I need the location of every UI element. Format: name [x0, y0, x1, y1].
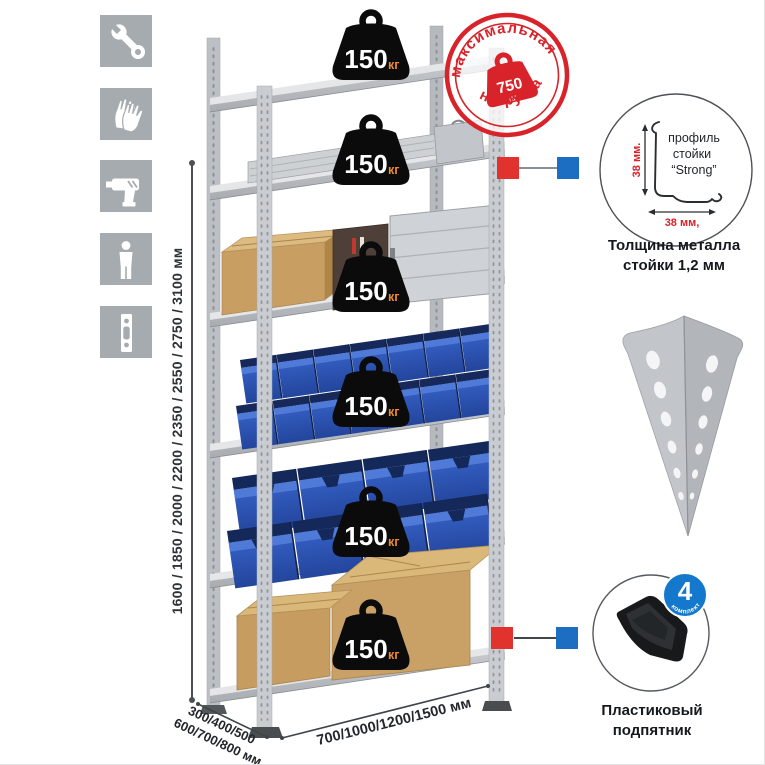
- base-dimensions: 300/400/500 600/700/800 мм 700/1000/1200…: [140, 682, 570, 765]
- foot-detail-circle: 4 в комплекте: [588, 568, 718, 698]
- height-dimension-label: 1600 / 1850 / 2000 / 2200 / 2350 / 2550 …: [169, 248, 185, 615]
- svg-text:кг: кг: [388, 405, 399, 419]
- foot-caption: Пластиковый подпятник: [577, 701, 727, 740]
- svg-text:стойки: стойки: [673, 147, 711, 161]
- svg-text:кг: кг: [388, 290, 399, 304]
- profile-caption-line1: Толщина металла: [608, 237, 740, 254]
- profile-caption-line2: стойки 1,2 мм: [623, 257, 725, 274]
- svg-text:150: 150: [344, 634, 387, 664]
- svg-text:150: 150: [344, 149, 387, 179]
- foot-caption-line2: подпятник: [613, 722, 692, 739]
- feature-tile-person: [100, 233, 152, 285]
- svg-text:150: 150: [344, 391, 387, 421]
- max-load-stamp: 750 кг максимальная нагрузка: [444, 12, 570, 138]
- profile-caption: Толщина металла стойки 1,2 мм: [585, 236, 763, 275]
- person-icon: [100, 233, 152, 285]
- callout-marker-blue-bottom: [556, 627, 578, 649]
- feature-tile-gloves: [100, 88, 152, 140]
- perforated-strip-icon: [100, 306, 152, 358]
- gloves-icon: [100, 88, 152, 140]
- foot-caption-line1: Пластиковый: [601, 702, 702, 719]
- width-dimension-label: 700/1000/1200/1500 мм: [315, 695, 473, 749]
- weight-badge: 150кг: [332, 13, 409, 81]
- svg-text:профиль: профиль: [668, 131, 720, 145]
- weight-badge: 150кг: [332, 118, 409, 186]
- badge-number: 4: [678, 576, 693, 606]
- feature-tile-drill: [100, 160, 152, 212]
- svg-text:“Strong”: “Strong”: [671, 163, 716, 177]
- svg-text:кг: кг: [388, 648, 399, 662]
- height-dimension-line: [191, 163, 193, 700]
- feature-tile-profile: [100, 306, 152, 358]
- upright-profile-image: [600, 298, 760, 543]
- profile-detail-circle: 38 мм. 38 мм, профиль стойки “Strong”: [596, 90, 756, 250]
- callout-line-top: [519, 167, 557, 169]
- profile-dim-horizontal: 38 мм,: [665, 217, 700, 229]
- drill-icon: [100, 160, 152, 212]
- svg-text:150: 150: [344, 44, 387, 74]
- callout-marker-red-top: [497, 157, 519, 179]
- svg-text:кг: кг: [388, 163, 399, 177]
- callout-marker-red-bottom: [491, 627, 513, 649]
- feature-tile-assembly: [100, 15, 152, 67]
- callout-marker-blue-top: [557, 157, 579, 179]
- svg-text:150: 150: [344, 276, 387, 306]
- svg-text:кг: кг: [388, 58, 399, 72]
- svg-text:кг: кг: [388, 535, 399, 549]
- wrench-icon: [100, 15, 152, 67]
- callout-line-bottom: [514, 637, 556, 639]
- product-infographic: 1600 / 1850 / 2000 / 2200 / 2350 / 2550 …: [0, 0, 765, 765]
- profile-dim-vertical: 38 мм.: [631, 143, 643, 178]
- svg-text:150: 150: [344, 521, 387, 551]
